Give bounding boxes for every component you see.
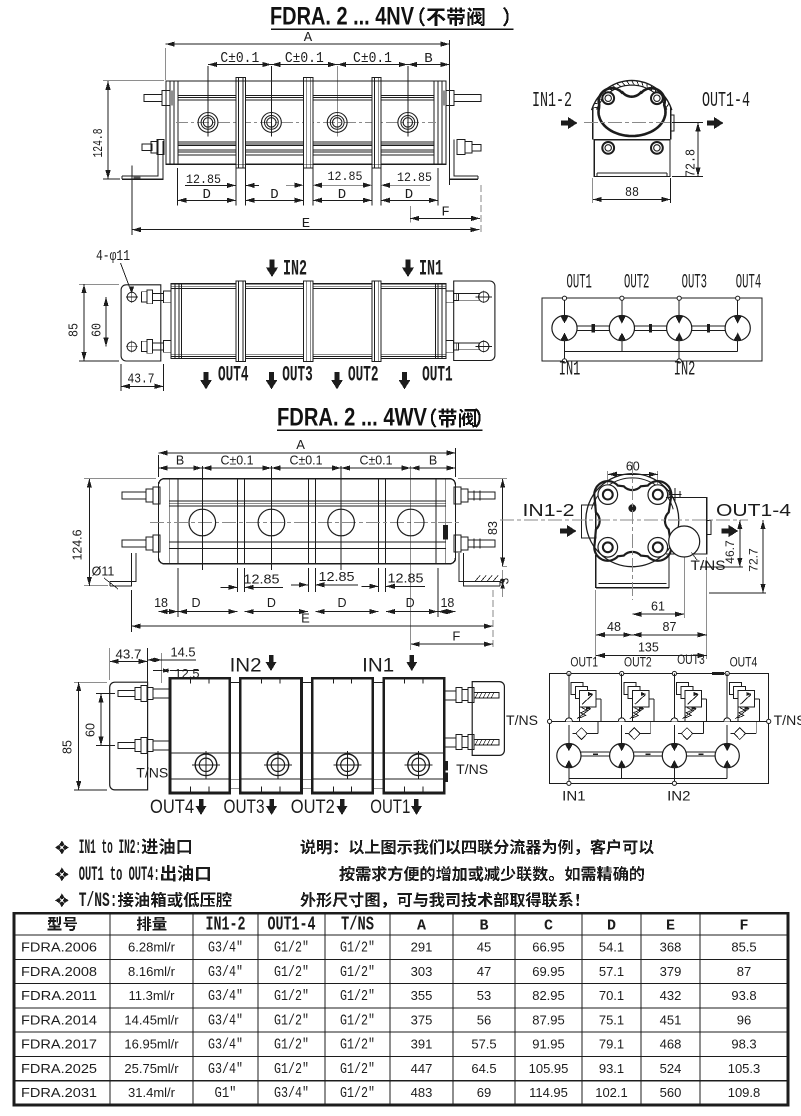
svg-text:E: E bbox=[666, 918, 675, 935]
svg-text:D: D bbox=[267, 596, 276, 610]
svg-text:OUT3: OUT3 bbox=[677, 652, 705, 667]
svg-text:G1/2": G1/2" bbox=[340, 940, 375, 957]
svg-text:87: 87 bbox=[737, 964, 751, 979]
svg-text:OUT2: OUT2 bbox=[348, 362, 379, 388]
svg-text:12.5: 12.5 bbox=[175, 667, 200, 681]
svg-text:355: 355 bbox=[411, 988, 433, 1003]
svg-text:IN1: IN1 bbox=[419, 256, 443, 282]
svg-text:FDRA. 2 ... 4WV: FDRA. 2 ... 4WV bbox=[277, 404, 427, 432]
svg-text:G1/2": G1/2" bbox=[340, 1012, 375, 1029]
svg-text:G1/2": G1/2" bbox=[274, 940, 309, 957]
svg-text:98.3: 98.3 bbox=[731, 1037, 756, 1052]
svg-text:IN1-2: IN1-2 bbox=[206, 914, 246, 936]
svg-text:IN1-2: IN1-2 bbox=[532, 90, 572, 113]
svg-text:C: C bbox=[544, 918, 553, 935]
svg-text:G3/4": G3/4" bbox=[208, 988, 243, 1005]
svg-text:47: 47 bbox=[477, 964, 491, 979]
svg-text:G3/4": G3/4" bbox=[208, 1037, 243, 1054]
svg-text:OUT2: OUT2 bbox=[624, 655, 652, 670]
svg-text:T/NS: T/NS bbox=[341, 914, 374, 936]
svg-text:G1/2": G1/2" bbox=[274, 1012, 309, 1029]
svg-text:E: E bbox=[302, 216, 310, 232]
svg-text:Ø11: Ø11 bbox=[92, 565, 115, 579]
svg-text:483: 483 bbox=[411, 1085, 433, 1100]
svg-text:43.7: 43.7 bbox=[116, 648, 142, 662]
svg-text:96: 96 bbox=[737, 1012, 751, 1027]
svg-text:A: A bbox=[296, 437, 305, 452]
svg-text:303: 303 bbox=[411, 964, 433, 979]
svg-text:124.6: 124.6 bbox=[71, 529, 85, 560]
svg-text:T/NS: T/NS bbox=[136, 765, 168, 781]
svg-text:447: 447 bbox=[411, 1061, 433, 1076]
svg-text:G1/2": G1/2" bbox=[274, 988, 309, 1005]
svg-text:524: 524 bbox=[660, 1061, 682, 1076]
svg-text:G1/2": G1/2" bbox=[340, 988, 375, 1005]
svg-text:FDRA.2017: FDRA.2017 bbox=[21, 1037, 97, 1052]
svg-text:468: 468 bbox=[660, 1037, 682, 1052]
svg-text:75.1: 75.1 bbox=[599, 1012, 624, 1027]
svg-text:79.1: 79.1 bbox=[599, 1037, 624, 1052]
svg-text:B: B bbox=[479, 918, 488, 935]
svg-text:D: D bbox=[406, 596, 415, 610]
svg-text:C±0.1: C±0.1 bbox=[285, 51, 324, 67]
svg-text:A: A bbox=[304, 30, 313, 46]
svg-text:T/NS: T/NS bbox=[691, 557, 726, 573]
svg-text:B: B bbox=[429, 454, 437, 468]
svg-text:18: 18 bbox=[440, 596, 454, 610]
svg-text:C±0.1: C±0.1 bbox=[220, 51, 259, 67]
svg-text:45: 45 bbox=[477, 940, 491, 955]
svg-text:105.95: 105.95 bbox=[529, 1061, 569, 1076]
svg-text:OUT1: OUT1 bbox=[370, 797, 410, 818]
svg-text:4-φ11: 4-φ11 bbox=[96, 249, 130, 265]
svg-text:48: 48 bbox=[607, 620, 621, 634]
svg-text:G1/2": G1/2" bbox=[340, 964, 375, 981]
svg-text:391: 391 bbox=[411, 1037, 433, 1052]
svg-text:G3/4": G3/4" bbox=[208, 964, 243, 981]
svg-text:451: 451 bbox=[660, 1012, 682, 1027]
svg-text:IN2: IN2 bbox=[283, 256, 307, 282]
svg-text:57.5: 57.5 bbox=[471, 1037, 496, 1052]
svg-text:291: 291 bbox=[411, 940, 433, 955]
svg-text:102.1: 102.1 bbox=[595, 1085, 628, 1100]
svg-text:16.95ml/r: 16.95ml/r bbox=[124, 1037, 179, 1052]
svg-text:OUT1-4: OUT1-4 bbox=[716, 500, 791, 520]
svg-text:83: 83 bbox=[486, 521, 500, 535]
svg-text:IN1 to IN2:: IN1 to IN2: bbox=[79, 837, 141, 860]
svg-text:FDRA.2011: FDRA.2011 bbox=[21, 988, 97, 1003]
svg-text:FDRA. 2 ... 4NV: FDRA. 2 ... 4NV bbox=[270, 2, 414, 30]
svg-text:T/NS: T/NS bbox=[456, 761, 488, 777]
svg-text:F: F bbox=[441, 205, 449, 221]
svg-text:11.3ml/r: 11.3ml/r bbox=[129, 988, 176, 1003]
svg-text:D: D bbox=[607, 918, 616, 935]
svg-text:D: D bbox=[337, 596, 346, 610]
svg-text:G1/2": G1/2" bbox=[340, 1037, 375, 1054]
svg-text:25.75ml/r: 25.75ml/r bbox=[124, 1061, 179, 1076]
svg-text:FDRA.2008: FDRA.2008 bbox=[21, 964, 97, 979]
svg-text:93.1: 93.1 bbox=[599, 1061, 624, 1076]
svg-text:G3/4": G3/4" bbox=[208, 940, 243, 957]
svg-text:432: 432 bbox=[660, 988, 682, 1003]
svg-text:IN2: IN2 bbox=[667, 788, 691, 804]
svg-text:60: 60 bbox=[91, 323, 106, 337]
svg-text:IN1-2: IN1-2 bbox=[523, 500, 575, 520]
svg-text:87.95: 87.95 bbox=[532, 1012, 565, 1027]
svg-text:OUT1: OUT1 bbox=[570, 655, 598, 670]
svg-text:368: 368 bbox=[660, 940, 682, 955]
svg-text:C±0.1: C±0.1 bbox=[360, 454, 393, 468]
svg-text:82.95: 82.95 bbox=[532, 988, 565, 1003]
svg-text:72.7: 72.7 bbox=[747, 548, 761, 572]
svg-text:OUT1-4: OUT1-4 bbox=[702, 90, 750, 113]
svg-text:D: D bbox=[270, 187, 278, 203]
svg-text:G3/4": G3/4" bbox=[208, 1012, 243, 1029]
svg-text:70.1: 70.1 bbox=[599, 988, 624, 1003]
svg-text:54.1: 54.1 bbox=[599, 940, 624, 955]
svg-text:OUT4: OUT4 bbox=[150, 797, 194, 818]
svg-text:14.5: 14.5 bbox=[171, 646, 196, 660]
svg-text:OUT1: OUT1 bbox=[567, 272, 592, 295]
svg-text:OUT2: OUT2 bbox=[291, 797, 335, 818]
svg-text:88: 88 bbox=[625, 186, 639, 201]
svg-text:31.4ml/r: 31.4ml/r bbox=[128, 1085, 176, 1100]
svg-text:OUT4: OUT4 bbox=[736, 272, 761, 295]
svg-text:IN1: IN1 bbox=[562, 788, 586, 804]
svg-text:OUT3: OUT3 bbox=[224, 797, 265, 818]
svg-text:93.8: 93.8 bbox=[731, 988, 756, 1003]
svg-text:12.85: 12.85 bbox=[328, 169, 363, 184]
svg-text:14.45ml/r: 14.45ml/r bbox=[124, 1012, 179, 1027]
svg-text:18: 18 bbox=[154, 596, 168, 610]
svg-text:D: D bbox=[405, 187, 413, 203]
svg-text:105.3: 105.3 bbox=[728, 1061, 761, 1076]
svg-text:60: 60 bbox=[84, 723, 98, 737]
svg-text:G1/2": G1/2" bbox=[340, 1085, 375, 1102]
svg-text:OUT2: OUT2 bbox=[624, 272, 649, 295]
svg-text:G3/4": G3/4" bbox=[208, 1061, 243, 1078]
svg-text:3: 3 bbox=[500, 578, 512, 584]
svg-text:53: 53 bbox=[477, 988, 491, 1003]
svg-text:66.95: 66.95 bbox=[532, 940, 565, 955]
svg-text:B: B bbox=[424, 51, 432, 67]
svg-text:A: A bbox=[417, 918, 426, 935]
svg-text:F: F bbox=[739, 918, 748, 935]
svg-text:G1/2": G1/2" bbox=[274, 1037, 309, 1054]
svg-text:12.85: 12.85 bbox=[244, 572, 280, 587]
svg-text:87: 87 bbox=[663, 620, 677, 634]
svg-text:135: 135 bbox=[638, 641, 659, 655]
svg-text:IN2: IN2 bbox=[674, 359, 696, 382]
svg-text:FDRA.2006: FDRA.2006 bbox=[21, 940, 97, 955]
svg-text:IN1: IN1 bbox=[559, 359, 581, 382]
svg-text:60: 60 bbox=[626, 460, 640, 474]
svg-text:56: 56 bbox=[477, 1012, 491, 1027]
svg-text:T/NS:: T/NS: bbox=[79, 890, 118, 913]
svg-text:F: F bbox=[452, 629, 460, 644]
svg-text:IN2: IN2 bbox=[230, 656, 262, 677]
svg-text:T/NS: T/NS bbox=[506, 713, 538, 728]
svg-text:FDRA.2014: FDRA.2014 bbox=[21, 1012, 97, 1027]
svg-text:124.8: 124.8 bbox=[91, 129, 107, 158]
svg-text:91.95: 91.95 bbox=[532, 1037, 565, 1052]
svg-text:12.85: 12.85 bbox=[388, 571, 424, 586]
svg-text:12.85: 12.85 bbox=[186, 172, 221, 187]
svg-text:109.8: 109.8 bbox=[728, 1085, 761, 1100]
svg-text:69: 69 bbox=[477, 1085, 491, 1100]
svg-text:FDRA.2025: FDRA.2025 bbox=[21, 1061, 97, 1076]
svg-text:64.5: 64.5 bbox=[471, 1061, 496, 1076]
svg-text:D: D bbox=[191, 596, 200, 610]
svg-text:69.95: 69.95 bbox=[532, 964, 565, 979]
svg-text:G1/2": G1/2" bbox=[274, 1061, 309, 1078]
svg-text:375: 375 bbox=[411, 1012, 433, 1027]
svg-text:43.7: 43.7 bbox=[128, 373, 155, 388]
svg-text:85: 85 bbox=[61, 740, 75, 754]
svg-text:D: D bbox=[338, 187, 346, 203]
svg-text:E: E bbox=[301, 611, 310, 626]
svg-text:C±0.1: C±0.1 bbox=[221, 454, 254, 468]
svg-text:G3/4": G3/4" bbox=[274, 1085, 309, 1102]
svg-text:46.7: 46.7 bbox=[723, 540, 737, 564]
svg-text:C±0.1: C±0.1 bbox=[353, 51, 392, 67]
svg-text:85: 85 bbox=[68, 323, 83, 337]
svg-text:B: B bbox=[176, 454, 184, 468]
svg-text:OUT4: OUT4 bbox=[730, 655, 758, 670]
svg-text:8.16ml/r: 8.16ml/r bbox=[128, 964, 176, 979]
svg-text:G1": G1" bbox=[215, 1085, 237, 1102]
svg-text:12.85: 12.85 bbox=[319, 569, 355, 584]
svg-text:OUT3: OUT3 bbox=[682, 272, 707, 295]
svg-text:61: 61 bbox=[651, 600, 665, 614]
svg-text:G1/2": G1/2" bbox=[340, 1061, 375, 1078]
svg-text:C±0.1: C±0.1 bbox=[290, 454, 323, 468]
svg-text:12.85: 12.85 bbox=[397, 170, 432, 185]
svg-text:379: 379 bbox=[660, 964, 682, 979]
svg-text:114.95: 114.95 bbox=[529, 1085, 568, 1100]
svg-text:G1/2": G1/2" bbox=[274, 964, 309, 981]
svg-text:OUT1 to OUT4:: OUT1 to OUT4: bbox=[79, 864, 160, 887]
svg-text:IN1: IN1 bbox=[362, 656, 394, 677]
svg-text:560: 560 bbox=[660, 1085, 682, 1100]
svg-text:OUT4: OUT4 bbox=[218, 362, 249, 388]
svg-text:OUT1-4: OUT1-4 bbox=[268, 914, 316, 936]
svg-text:85.5: 85.5 bbox=[731, 940, 756, 955]
svg-text:6.28ml/r: 6.28ml/r bbox=[128, 940, 176, 955]
svg-text:FDRA.2031: FDRA.2031 bbox=[21, 1085, 97, 1100]
svg-text:OUT1: OUT1 bbox=[422, 362, 453, 388]
svg-text:OUT3: OUT3 bbox=[282, 362, 313, 388]
svg-text:57.1: 57.1 bbox=[599, 964, 624, 979]
svg-text:T/NS: T/NS bbox=[774, 713, 801, 728]
svg-text:72.8: 72.8 bbox=[685, 149, 700, 177]
svg-text:D: D bbox=[202, 187, 210, 203]
